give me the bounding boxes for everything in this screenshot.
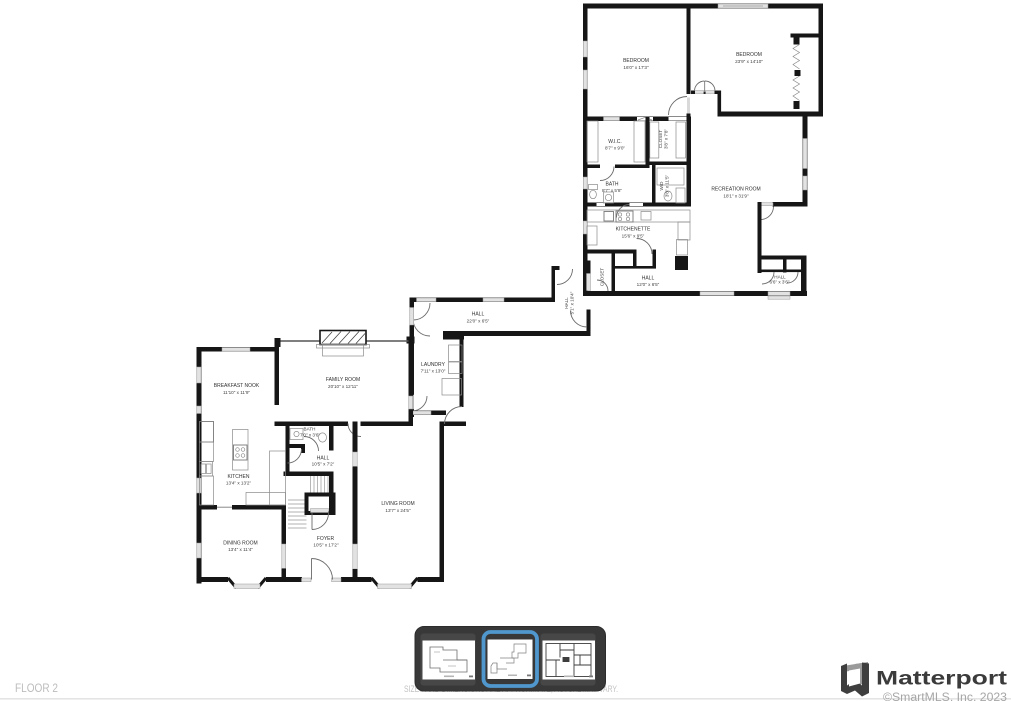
svg-text:16'0" x 17'3": 16'0" x 17'3" xyxy=(623,65,649,70)
svg-text:5'1" x 10'4": 5'1" x 10'4" xyxy=(570,291,575,314)
svg-text:LIVING ROOM: LIVING ROOM xyxy=(381,501,414,507)
svg-text:HALL: HALL xyxy=(564,297,569,309)
svg-text:23'9" x 14'10": 23'9" x 14'10" xyxy=(735,59,763,64)
svg-text:DINING ROOM: DINING ROOM xyxy=(223,541,257,547)
svg-text:7'0" x 3'6": 7'0" x 3'6" xyxy=(300,433,320,438)
svg-text:HALL: HALL xyxy=(642,276,655,282)
svg-text:FLOOR 2: FLOOR 2 xyxy=(15,681,58,695)
svg-text:12'0" x 6'5": 12'0" x 6'5" xyxy=(637,282,660,287)
svg-text:10'5" x 7'2": 10'5" x 7'2" xyxy=(312,462,335,467)
svg-text:18'1" x 31'9": 18'1" x 31'9" xyxy=(723,194,749,199)
svg-text:BATH: BATH xyxy=(304,427,316,432)
svg-text:RECREATION ROOM: RECREATION ROOM xyxy=(711,187,760,193)
svg-text:3'8" x 7'8": 3'8" x 7'8" xyxy=(664,129,669,149)
svg-text:CLOSET: CLOSET xyxy=(658,130,663,149)
svg-text:11'10" x 11'9": 11'10" x 11'9" xyxy=(223,390,250,395)
svg-text:6'6" x 3'6": 6'6" x 3'6" xyxy=(769,280,789,285)
svg-text:©SmartMLS, Inc. 2023: ©SmartMLS, Inc. 2023 xyxy=(883,692,1007,701)
svg-text:FAMILY ROOM: FAMILY ROOM xyxy=(326,377,360,383)
svg-text:10'5" x 17'2": 10'5" x 17'2" xyxy=(313,543,339,548)
svg-text:BEDROOM: BEDROOM xyxy=(623,58,649,64)
svg-text:HALL: HALL xyxy=(472,312,485,318)
svg-text:W/D: W/D xyxy=(659,181,664,191)
svg-text:KITCHEN: KITCHEN xyxy=(228,474,250,480)
svg-text:13'7" x 24'5": 13'7" x 24'5" xyxy=(385,508,411,513)
svg-text:BEDROOM: BEDROOM xyxy=(736,52,762,58)
svg-text:13'4" x 13'2": 13'4" x 13'2" xyxy=(226,481,252,486)
svg-text:BATH: BATH xyxy=(606,182,619,188)
svg-text:W.I.C.: W.I.C. xyxy=(608,139,622,145)
svg-text:3'8" x 11'5": 3'8" x 11'5" xyxy=(665,174,670,197)
svg-text:13'4" x 11'4": 13'4" x 11'4" xyxy=(228,547,253,552)
svg-text:20'10" x 12'11": 20'10" x 12'11" xyxy=(328,384,358,389)
svg-text:Matterport: Matterport xyxy=(876,668,1008,690)
svg-text:15'6" x 9'5": 15'6" x 9'5" xyxy=(622,234,645,239)
svg-text:LAUNDRY: LAUNDRY xyxy=(421,362,445,368)
svg-text:8'7" x 9'0": 8'7" x 9'0" xyxy=(605,146,625,151)
svg-text:22'0" x 6'5": 22'0" x 6'5" xyxy=(467,319,490,324)
svg-text:BREAKFAST NOOK: BREAKFAST NOOK xyxy=(214,383,260,389)
svg-text:CLOSET: CLOSET xyxy=(600,268,605,287)
svg-text:FOYER: FOYER xyxy=(317,536,335,542)
svg-text:8'7" x 5'8": 8'7" x 5'8" xyxy=(602,188,622,193)
svg-text:KITCHENETTE: KITCHENETTE xyxy=(616,227,651,233)
svg-text:7'11" x 13'0": 7'11" x 13'0" xyxy=(421,369,446,374)
